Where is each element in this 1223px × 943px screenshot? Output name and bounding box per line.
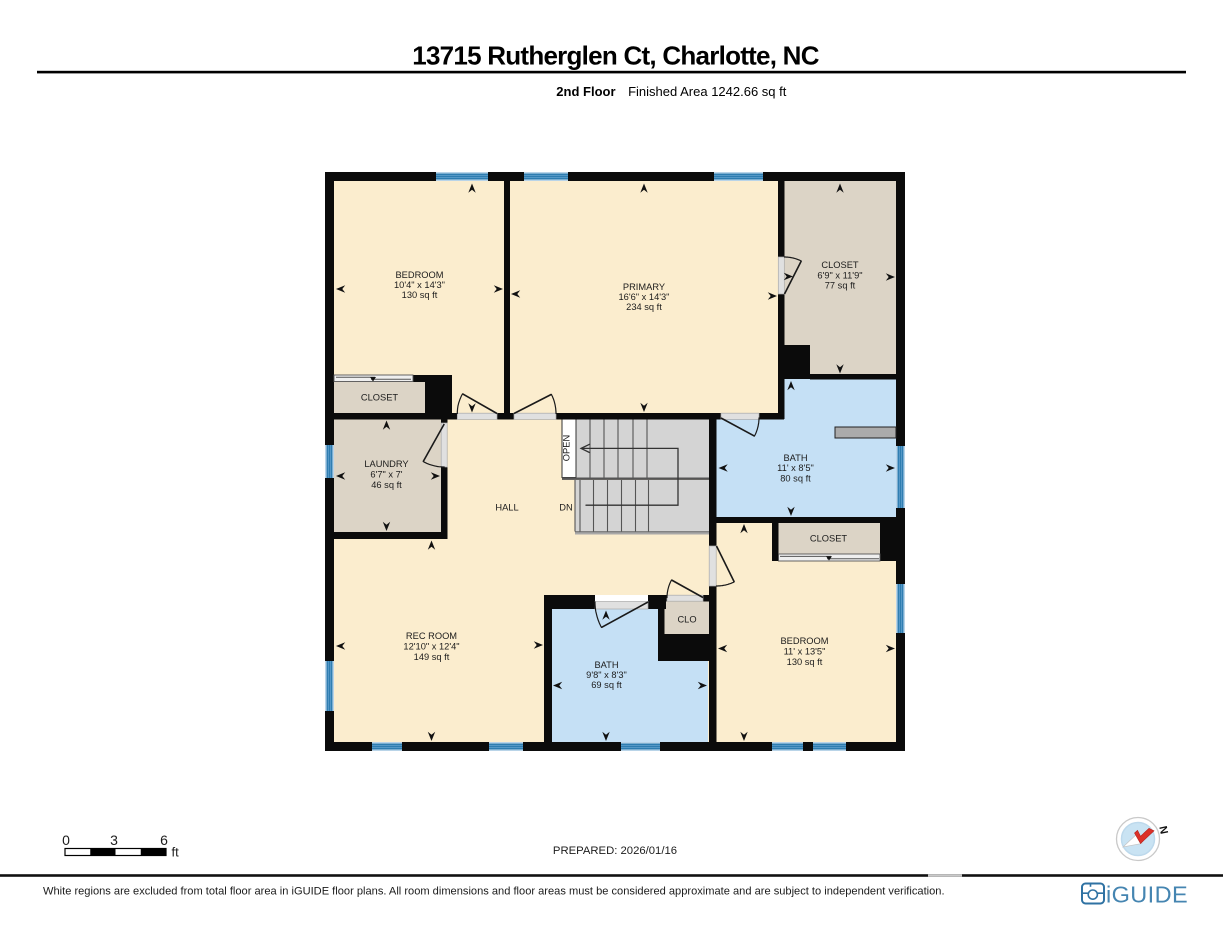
svg-text:234 sq ft: 234 sq ft <box>626 302 662 312</box>
svg-text:6'9" x 11'9": 6'9" x 11'9" <box>817 271 862 281</box>
svg-text:Finished Area 1242.66 sq ft: Finished Area 1242.66 sq ft <box>628 84 787 99</box>
svg-text:77 sq ft: 77 sq ft <box>825 281 856 291</box>
svg-text:CLOSET: CLOSET <box>821 260 859 270</box>
svg-text:N: N <box>1156 825 1169 835</box>
svg-text:11' x 8'5": 11' x 8'5" <box>777 463 814 473</box>
svg-text:6: 6 <box>160 832 168 848</box>
svg-text:0: 0 <box>62 832 70 848</box>
svg-text:130 sq ft: 130 sq ft <box>787 657 823 667</box>
svg-text:6'7" x 7': 6'7" x 7' <box>370 470 402 480</box>
svg-text:80 sq ft: 80 sq ft <box>780 474 811 484</box>
svg-text:BEDROOM: BEDROOM <box>780 636 828 646</box>
svg-text:69 sq ft: 69 sq ft <box>591 680 622 690</box>
svg-text:PRIMARY: PRIMARY <box>623 282 665 292</box>
svg-text:BATH: BATH <box>783 453 807 463</box>
svg-text:PREPARED: 2026/01/16: PREPARED: 2026/01/16 <box>553 845 677 857</box>
svg-text:BATH: BATH <box>594 660 618 670</box>
svg-text:LAUNDRY: LAUNDRY <box>364 459 408 469</box>
svg-text:HALL: HALL <box>495 503 518 513</box>
svg-text:BEDROOM: BEDROOM <box>395 270 443 280</box>
svg-text:REC ROOM: REC ROOM <box>406 631 457 641</box>
svg-text:CLO: CLO <box>677 615 696 625</box>
svg-text:12'10" x 12'4": 12'10" x 12'4" <box>403 642 459 652</box>
svg-text:OPEN: OPEN <box>561 435 571 461</box>
svg-text:DN: DN <box>559 503 572 513</box>
svg-text:11' x 13'5": 11' x 13'5" <box>784 647 826 657</box>
svg-text:iGUIDE: iGUIDE <box>1106 882 1188 908</box>
svg-text:13715 Rutherglen Ct, Charlotte: 13715 Rutherglen Ct, Charlotte, NC <box>412 40 819 70</box>
svg-text:White regions are excluded fro: White regions are excluded from total fl… <box>43 885 945 897</box>
svg-text:10'4" x 14'3": 10'4" x 14'3" <box>394 280 445 290</box>
svg-text:9'8" x 8'3": 9'8" x 8'3" <box>586 670 627 680</box>
svg-text:130 sq ft: 130 sq ft <box>402 290 438 300</box>
svg-text:149 sq ft: 149 sq ft <box>414 652 450 662</box>
svg-text:ft: ft <box>172 845 180 860</box>
svg-text:16'6" x 14'3": 16'6" x 14'3" <box>619 292 670 302</box>
svg-text:3: 3 <box>110 832 118 848</box>
svg-text:CLOSET: CLOSET <box>361 393 399 403</box>
svg-text:46 sq ft: 46 sq ft <box>371 480 402 490</box>
svg-text:2nd Floor: 2nd Floor <box>556 84 615 99</box>
svg-text:CLOSET: CLOSET <box>810 534 848 544</box>
